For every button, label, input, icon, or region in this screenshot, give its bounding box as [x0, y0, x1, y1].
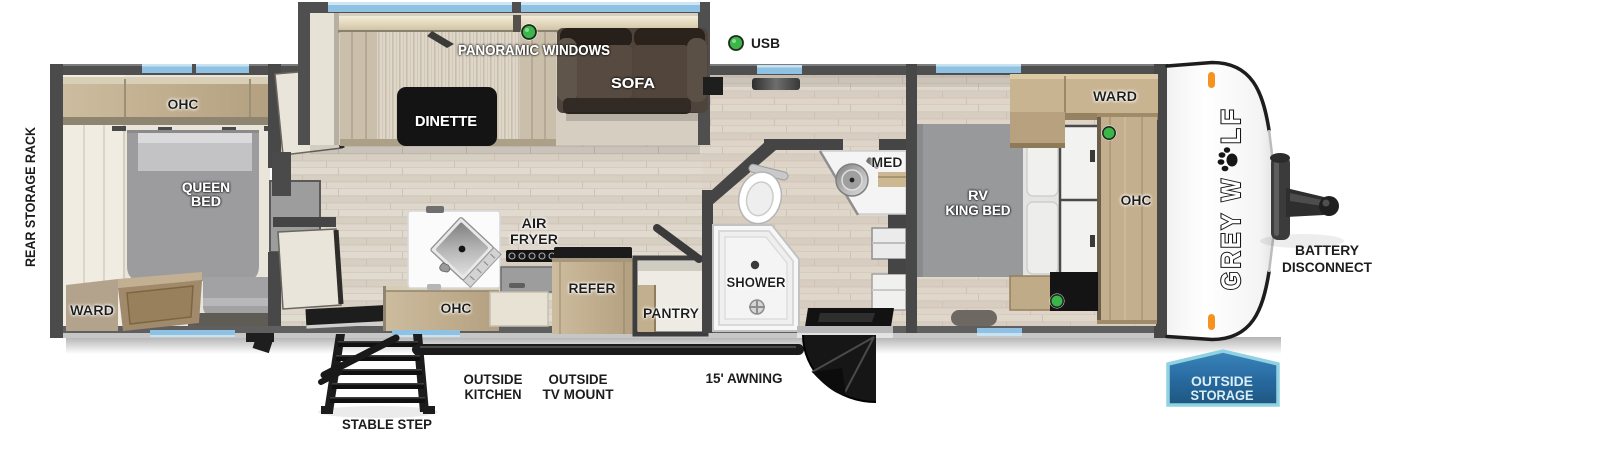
svg-text:MED: MED [872, 155, 903, 170]
svg-text:15' AWNING: 15' AWNING [706, 371, 783, 386]
svg-text:PANTRY: PANTRY [643, 306, 699, 321]
svg-text:FRYER: FRYER [510, 232, 558, 247]
svg-text:RV: RV [968, 188, 988, 203]
svg-text:OHC: OHC [441, 301, 472, 316]
svg-text:WARD: WARD [1093, 89, 1137, 104]
svg-text:BED: BED [191, 194, 221, 209]
svg-text:BATTERY: BATTERY [1295, 243, 1359, 258]
svg-text:LF: LF [1216, 106, 1246, 144]
svg-text:TV MOUNT: TV MOUNT [543, 387, 615, 402]
svg-text:REAR STORAGE RACK: REAR STORAGE RACK [23, 127, 38, 267]
svg-text:DINETTE: DINETTE [415, 113, 477, 130]
svg-text:KITCHEN: KITCHEN [465, 387, 522, 402]
svg-text:STORAGE: STORAGE [1191, 388, 1254, 403]
svg-text:WARD: WARD [70, 303, 114, 318]
svg-text:OUTSIDE: OUTSIDE [1191, 374, 1253, 389]
svg-text:DISCONNECT: DISCONNECT [1282, 260, 1373, 275]
svg-text:OHC: OHC [168, 97, 199, 112]
svg-text:REFER: REFER [569, 281, 616, 296]
svg-text:STABLE STEP: STABLE STEP [342, 417, 432, 432]
svg-text:OHC: OHC [1121, 193, 1152, 208]
svg-text:SOFA: SOFA [611, 75, 655, 92]
svg-text:SHOWER: SHOWER [727, 275, 786, 290]
svg-text:PANORAMIC WINDOWS: PANORAMIC WINDOWS [458, 42, 610, 59]
svg-text:QUEEN: QUEEN [182, 180, 230, 195]
svg-text:USB: USB [751, 36, 780, 51]
svg-text:OUTSIDE: OUTSIDE [549, 372, 608, 387]
svg-text:OUTSIDE: OUTSIDE [464, 372, 523, 387]
svg-text:KING BED: KING BED [946, 203, 1011, 218]
svg-text:GREY W: GREY W [1216, 176, 1246, 290]
svg-text:AIR: AIR [522, 216, 547, 231]
